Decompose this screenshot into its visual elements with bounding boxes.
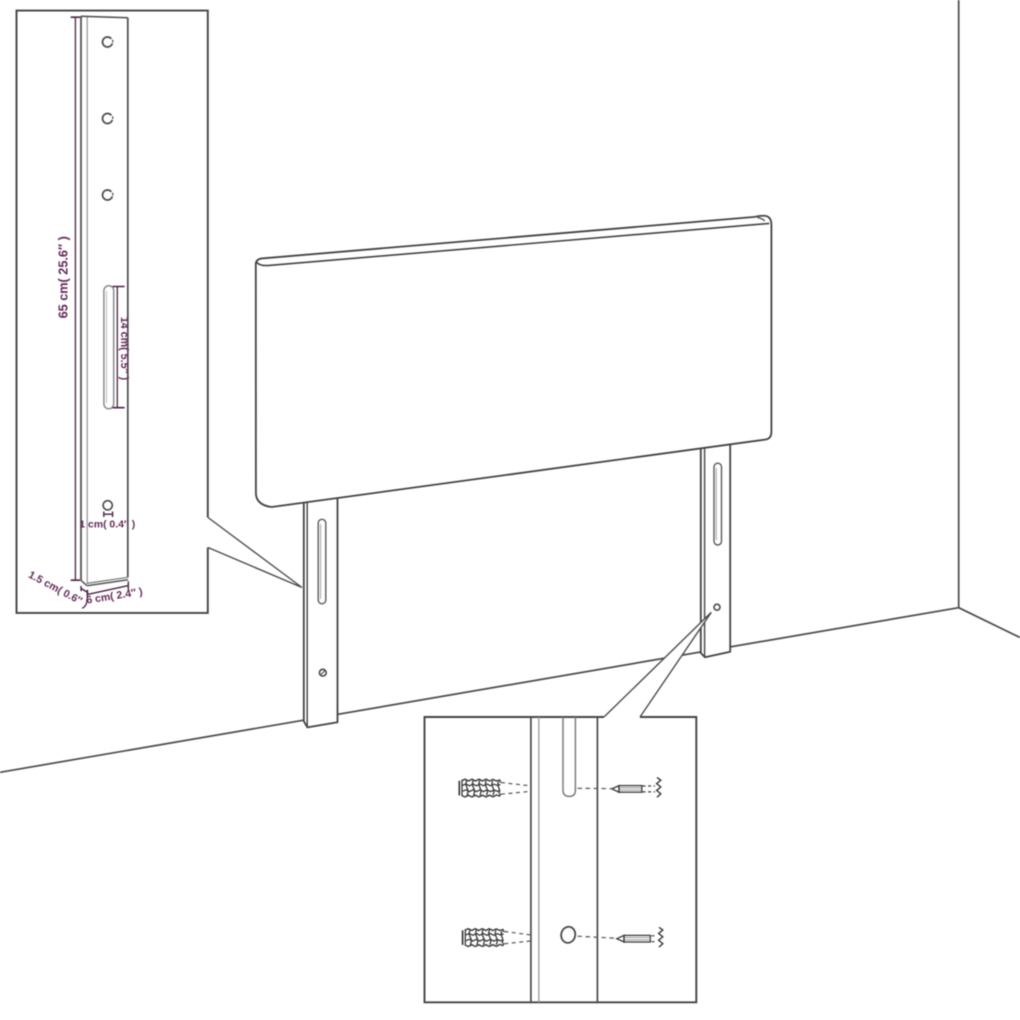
svg-text:65 cm( 25.6″ ): 65 cm( 25.6″ ) bbox=[56, 236, 70, 318]
svg-text:14 cm( 5.5″ ): 14 cm( 5.5″ ) bbox=[118, 317, 130, 381]
svg-text:1 cm( 0.4″ ): 1 cm( 0.4″ ) bbox=[79, 520, 135, 531]
